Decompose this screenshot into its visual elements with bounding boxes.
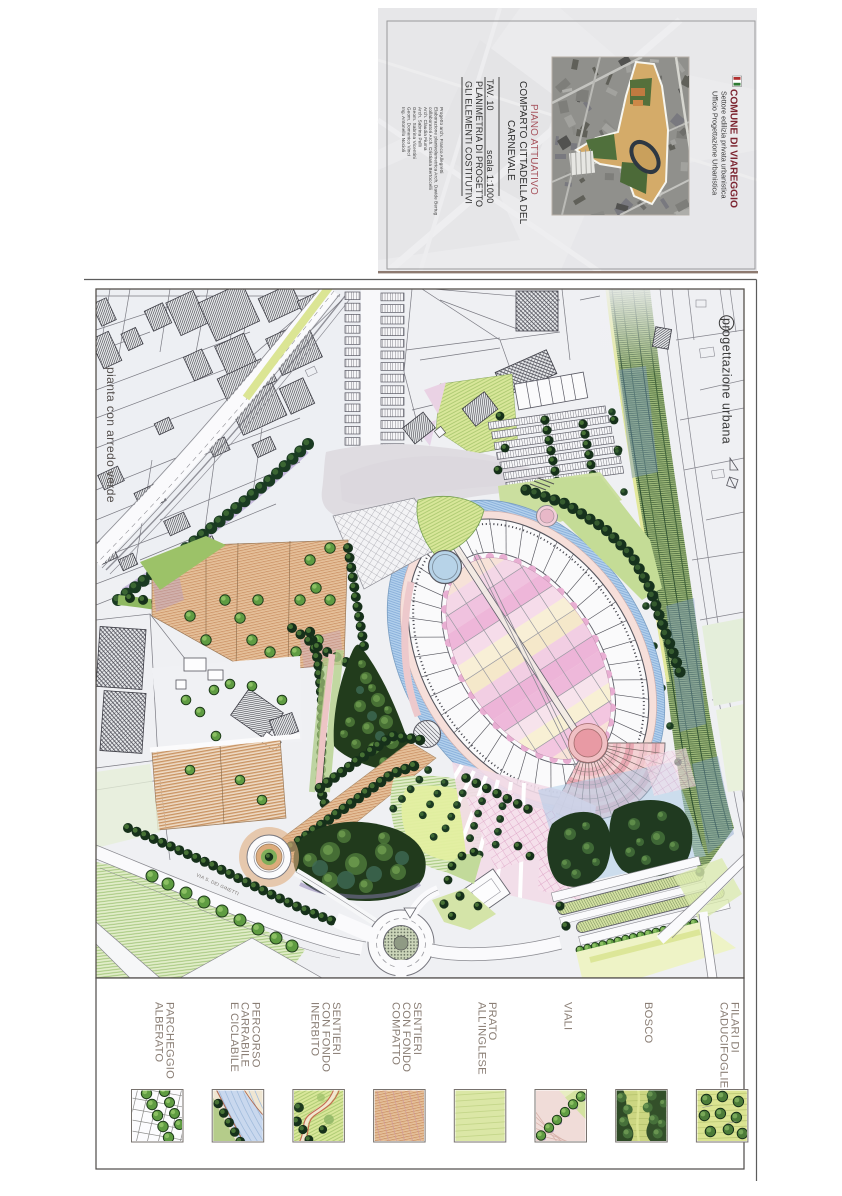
svg-text:PLANIMETRIA DI PROGETTO: PLANIMETRIA DI PROGETTO <box>474 81 484 207</box>
svg-text:Ufficio Progettazione Urbanist: Ufficio Progettazione Urbanistica <box>711 91 720 195</box>
svg-text:VIALI: VIALI <box>562 1002 574 1030</box>
svg-text:Settore edilizia privata urban: Settore edilizia privata urbanistica <box>720 91 729 198</box>
svg-text:pianta con arredo verde: pianta con arredo verde <box>104 367 118 503</box>
svg-text:TAV. 10: TAV. 10 <box>485 79 495 111</box>
svg-text:COMPARTO CITTADELLA DEL: COMPARTO CITTADELLA DEL <box>517 81 528 225</box>
svg-text:progettazione urbana: progettazione urbana <box>720 318 734 444</box>
svg-text:BOSCO: BOSCO <box>642 1002 654 1044</box>
svg-text:PIANO ATTUATIVO: PIANO ATTUATIVO <box>528 104 539 195</box>
svg-text:PERCORSOCARRABILEE CICLABILE: PERCORSOCARRABILEE CICLABILE <box>228 1002 262 1072</box>
svg-text:scala 1:1000: scala 1:1000 <box>485 150 495 203</box>
svg-text:GLI ELEMENTI COSTITUTIVI: GLI ELEMENTI COSTITUTIVI <box>464 81 474 204</box>
svg-text:CARNEVALE: CARNEVALE <box>505 120 516 181</box>
